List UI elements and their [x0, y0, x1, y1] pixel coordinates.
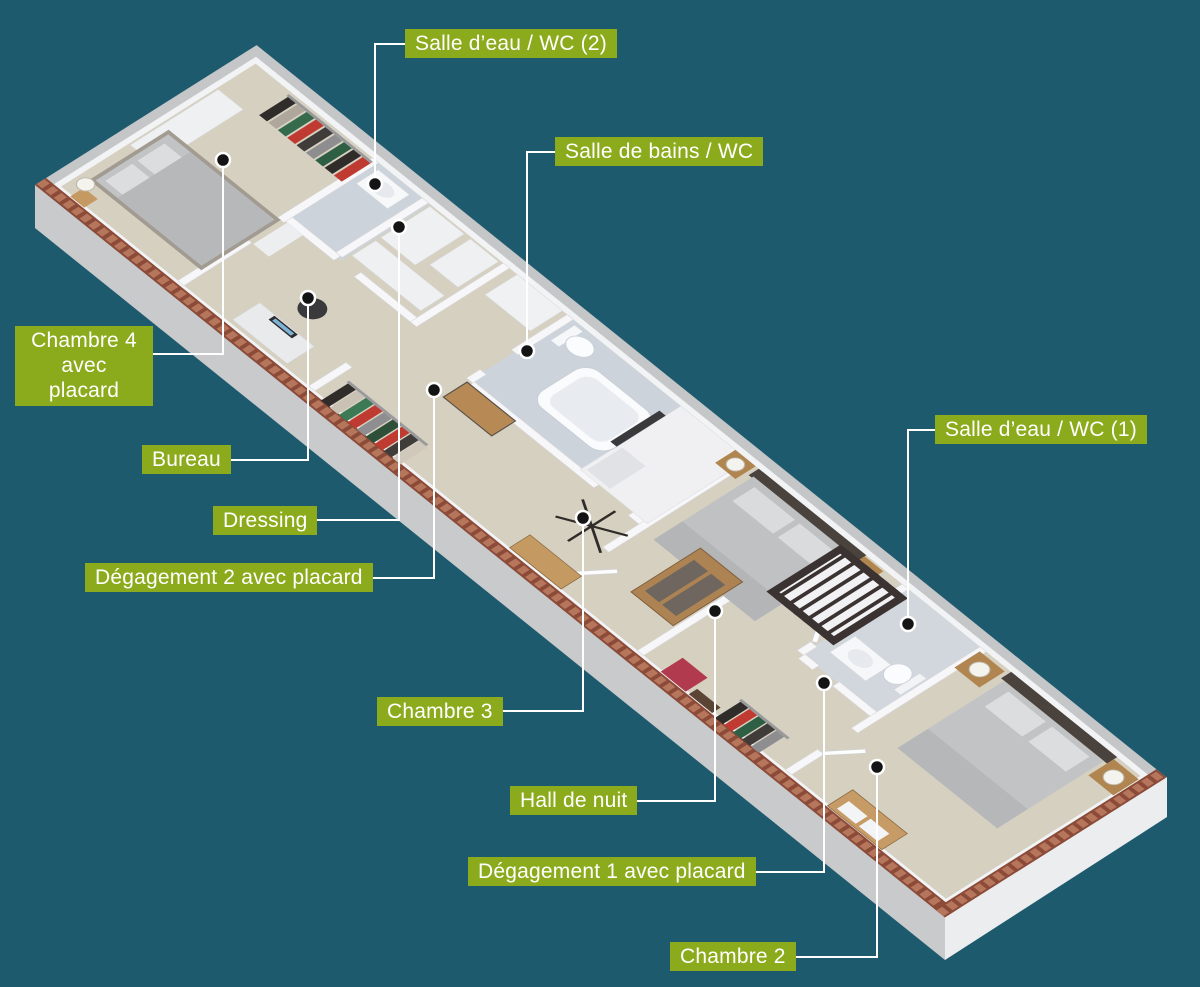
leader-dot-bureau — [301, 291, 315, 305]
building — [35, 45, 1167, 917]
leader-dot-salle-de-bains-wc — [520, 344, 534, 358]
leader-dot-hall-de-nuit — [708, 604, 722, 618]
leader-dot-chambre-4 — [216, 153, 230, 167]
floorplan-stage: Salle d’eau / WC (2)Salle de bains / WCC… — [0, 0, 1200, 987]
floorplan-svg — [0, 0, 1200, 987]
leader-dot-chambre-3 — [576, 511, 590, 525]
leader-dot-salle-eau-wc-1 — [901, 617, 915, 631]
leader-dot-chambre-2 — [870, 760, 884, 774]
leader-dot-salle-eau-wc-2 — [368, 177, 382, 191]
leader-dot-degagement-2 — [427, 383, 441, 397]
leader-dot-degagement-1 — [817, 676, 831, 690]
leader-dot-dressing — [392, 220, 406, 234]
